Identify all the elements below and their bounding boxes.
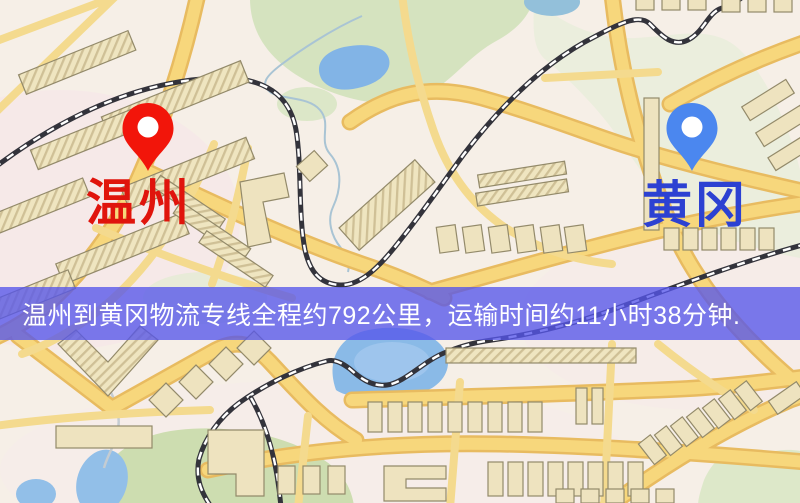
pin-hole: [682, 117, 703, 138]
route-banner: 温州到黄冈物流专线全程约792公里，运输时间约11小时38分钟.: [0, 287, 800, 340]
pin-hole: [138, 117, 159, 138]
map-pin-icon: [665, 102, 719, 172]
map-pin-icon: [121, 102, 175, 172]
destination-label: 黄冈: [642, 180, 748, 230]
origin-pin[interactable]: [121, 102, 175, 172]
route-banner-text: 温州到黄冈物流专线全程约792公里，运输时间约11小时38分钟.: [22, 296, 740, 332]
destination-pin[interactable]: [665, 102, 719, 172]
basemap: [0, 0, 800, 503]
map-canvas[interactable]: 温州 黄冈 温州到黄冈物流专线全程约792公里，运输时间约11小时38分钟.: [0, 0, 800, 503]
origin-label: 温州: [86, 178, 192, 228]
